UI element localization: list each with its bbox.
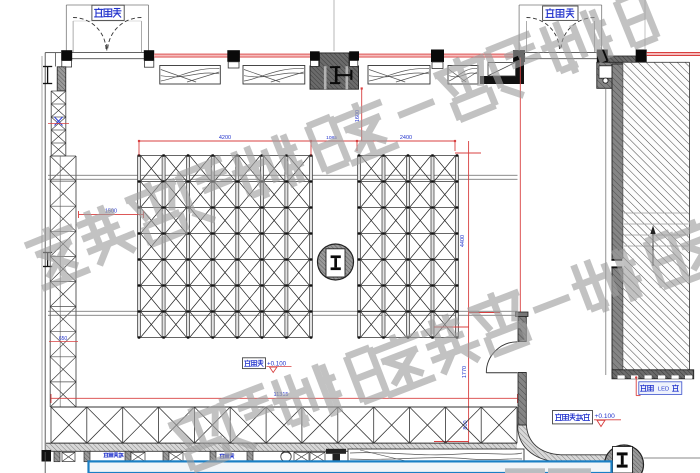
svg-text:LED: LED <box>658 387 669 393</box>
svg-text:650: 650 <box>59 336 68 342</box>
svg-text:2400: 2400 <box>400 135 412 141</box>
svg-text:+0.100: +0.100 <box>595 413 616 420</box>
svg-text:4400: 4400 <box>460 235 466 247</box>
svg-text:1770: 1770 <box>462 366 468 378</box>
svg-text:4200: 4200 <box>219 135 231 141</box>
